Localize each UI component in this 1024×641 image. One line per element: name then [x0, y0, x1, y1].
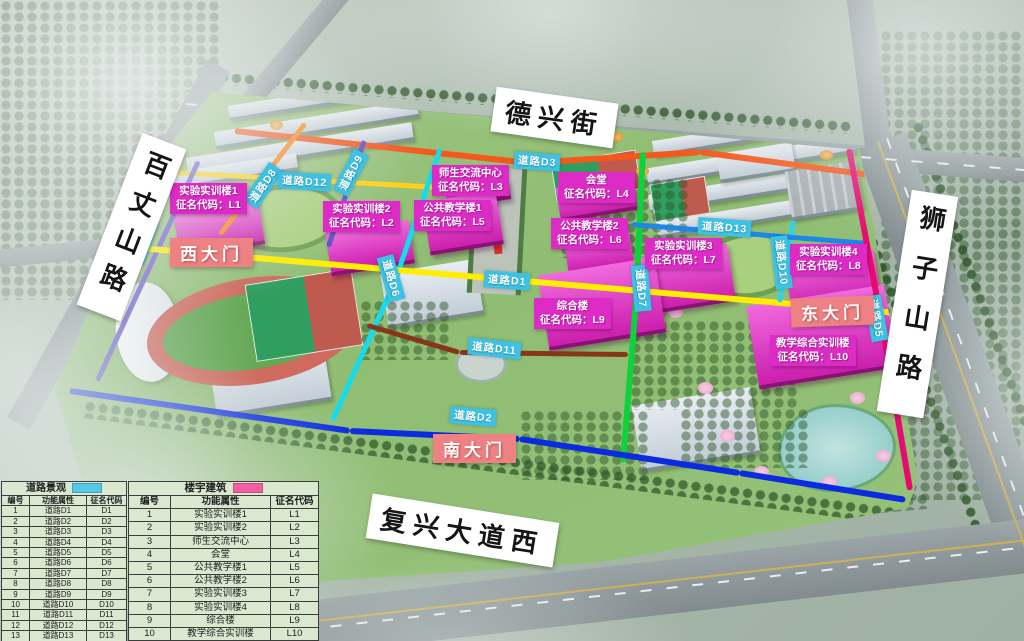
- legend-cell: L1: [271, 509, 319, 522]
- building-label-l3: 师生交流中心征名代码：L3: [432, 165, 509, 196]
- road-label-d1: 道路D1: [483, 270, 531, 290]
- campus-aerial-map: 道路D1 道路D2 道路D3 道路D4 道路D5 道路D6 道路D7 道路D8 …: [0, 0, 1024, 641]
- legend-row: 1道路D1D1: [2, 506, 127, 516]
- legend-cell: 实验实训楼3: [171, 588, 271, 601]
- road-label-d12: 道路D12: [278, 172, 332, 192]
- building-code: 征名代码：L1: [176, 199, 241, 213]
- legend-row: 5公共教学楼1L5: [129, 562, 319, 575]
- building-legend-table: 楼宇建筑 编号功能属性征名代码 1实验实训楼1L12实验实训楼2L23师生交流中…: [128, 481, 319, 641]
- legend-row: 6道路D6D6: [2, 558, 127, 568]
- sakura-tree: [850, 392, 865, 404]
- building-name: 公共教学楼1: [420, 202, 485, 216]
- legend-cell: 5: [129, 562, 171, 575]
- legend-header-row: 编号功能属性征名代码: [129, 496, 319, 509]
- legend-cell: D3: [87, 527, 127, 537]
- legend-row: 9道路D9D9: [2, 589, 127, 599]
- legend-cell: 道路D9: [30, 589, 87, 599]
- building-label-l6: 公共教学楼2征名代码：L6: [551, 218, 628, 249]
- legend-cell: 9: [129, 614, 171, 627]
- legend-cell: 道路D5: [30, 548, 87, 558]
- legend-row: 8道路D8D8: [2, 579, 127, 589]
- legend-cell: 3: [2, 527, 30, 537]
- building-label-l7: 实验实训楼3征名代码：L7: [645, 238, 722, 269]
- building-label-l5: 公共教学楼1征名代码：L5: [414, 200, 491, 231]
- legend-cell: 4: [2, 537, 30, 547]
- legend-row: 12道路D12D12: [2, 620, 127, 630]
- legend-cell: 10: [2, 600, 30, 610]
- legend-cell: 公共教学楼2: [171, 575, 271, 588]
- building-label-l4: 会堂征名代码：L4: [558, 172, 635, 203]
- legend-cell: D13: [87, 631, 127, 641]
- legend-cell: D12: [87, 620, 127, 630]
- legend-cell: 道路D1: [30, 506, 87, 516]
- legend-cell: D7: [87, 568, 127, 578]
- legend-cell: 实验实训楼1: [171, 509, 271, 522]
- legend-row: 10道路D10D10: [2, 600, 127, 610]
- legend-cell: 道路D10: [30, 600, 87, 610]
- legend-row: 5道路D5D5: [2, 548, 127, 558]
- legend-tables: 道路景观 编号功能属性征名代码 1道路D1D12道路D2D23道路D3D34道路…: [1, 481, 319, 641]
- legend-cell: D1: [87, 506, 127, 516]
- building-label-l2: 实验实训楼2征名代码：L2: [323, 201, 400, 232]
- road-label-d13: 道路D13: [697, 217, 751, 238]
- legend-title-text: 道路景观: [26, 483, 66, 494]
- legend-cell: 1: [129, 509, 171, 522]
- road-north-branch: [240, 0, 351, 111]
- legend-title-text: 楼宇建筑: [185, 482, 227, 494]
- building-name: 实验实训楼4: [796, 246, 861, 260]
- legend-cell: 道路D12: [30, 620, 87, 630]
- legend-cell: 2: [2, 516, 30, 526]
- legend-row: 3师生交流中心L3: [129, 535, 319, 548]
- building-code: 征名代码：L3: [438, 181, 503, 195]
- legend-cell: 道路D11: [30, 610, 87, 620]
- legend-cell: D4: [87, 537, 127, 547]
- gate-label-south: 南大门: [433, 434, 516, 463]
- legend-cell: D10: [87, 600, 127, 610]
- building-name: 实验实训楼2: [329, 203, 394, 217]
- autumn-tree: [820, 150, 833, 160]
- building-label-l8: 实验实训楼4征名代码：L8: [790, 244, 867, 275]
- legend-row: 2道路D2D2: [2, 516, 127, 526]
- legend-row: 2实验实训楼2L2: [129, 522, 319, 535]
- legend-cell: L9: [271, 614, 319, 627]
- legend-cell: 道路D2: [30, 516, 87, 526]
- legend-cell: 道路D7: [30, 568, 87, 578]
- legend-cell: 6: [2, 558, 30, 568]
- legend-cell: 8: [2, 579, 30, 589]
- legend-cell: 公共教学楼1: [171, 562, 271, 575]
- sakura-tree: [698, 382, 713, 394]
- building-name: 会堂: [564, 174, 629, 188]
- legend-cell: 道路D6: [30, 558, 87, 568]
- building-name: 实验实训楼1: [176, 185, 241, 199]
- legend-cell: L4: [271, 548, 319, 561]
- legend-cell: 11: [2, 610, 30, 620]
- building-name: 公共教学楼2: [557, 220, 622, 234]
- building-name: 教学综合实训楼: [776, 337, 850, 351]
- legend-cell: 7: [2, 568, 30, 578]
- building-code: 征名代码：L7: [651, 254, 716, 268]
- legend-cell: 1: [2, 506, 30, 516]
- legend-cell: 13: [2, 631, 30, 641]
- road-legend-title: 道路景观: [2, 482, 127, 496]
- road-label-d3: 道路D3: [513, 151, 561, 171]
- legend-row: 6公共教学楼2L6: [129, 575, 319, 588]
- legend-cell: L10: [271, 628, 319, 641]
- legend-cell: D5: [87, 548, 127, 558]
- legend-row: 4道路D4D4: [2, 537, 127, 547]
- building-code: 征名代码：L5: [420, 216, 485, 230]
- building-legend-title: 楼宇建筑: [129, 482, 319, 496]
- building-name: 综合楼: [540, 300, 605, 314]
- legend-row: 7道路D7D7: [2, 568, 127, 578]
- legend-cell: 3: [129, 535, 171, 548]
- legend-header-cell: 征名代码: [271, 496, 319, 509]
- legend-header-cell: 功能属性: [171, 496, 271, 509]
- legend-cell: 8: [129, 601, 171, 614]
- legend-cell: 会堂: [171, 548, 271, 561]
- legend-cell: 道路D13: [30, 631, 87, 641]
- legend-row: 4会堂L4: [129, 548, 319, 561]
- legend-row: 10教学综合实训楼L10: [129, 628, 319, 641]
- tennis-courts: [245, 268, 364, 362]
- road-legend-table: 道路景观 编号功能属性征名代码 1道路D1D12道路D2D23道路D3D34道路…: [1, 481, 127, 641]
- legend-cell: D11: [87, 610, 127, 620]
- building-name: 实验实训楼3: [651, 240, 716, 254]
- legend-cell: L7: [271, 588, 319, 601]
- legend-header-cell: 编号: [2, 496, 30, 506]
- legend-row: 9综合楼L9: [129, 614, 319, 627]
- legend-row: 11道路D11D11: [2, 610, 127, 620]
- tree-patch: [680, 408, 810, 468]
- legend-cell: D9: [87, 589, 127, 599]
- legend-cell: 12: [2, 620, 30, 630]
- legend-header-cell: 功能属性: [30, 496, 87, 506]
- legend-cell: L5: [271, 562, 319, 575]
- legend-cell: D2: [87, 516, 127, 526]
- legend-cell: 实验实训楼2: [171, 522, 271, 535]
- legend-cell: L3: [271, 535, 319, 548]
- building-label-l1: 实验实训楼1征名代码：L1: [170, 183, 247, 214]
- legend-cell: 10: [129, 628, 171, 641]
- legend-cell: L6: [271, 575, 319, 588]
- building-code: 征名代码：L4: [564, 188, 629, 202]
- road-legend-body: 1道路D1D12道路D2D23道路D3D34道路D4D45道路D5D56道路D6…: [2, 506, 127, 641]
- legend-cell: L2: [271, 522, 319, 535]
- sakura-tree: [876, 450, 891, 462]
- gate-label-west: 西大门: [170, 238, 253, 267]
- legend-row: 8实验实训楼4L8: [129, 601, 319, 614]
- legend-cell: 道路D4: [30, 537, 87, 547]
- legend-cell: 4: [129, 548, 171, 561]
- legend-cell: 实验实训楼4: [171, 601, 271, 614]
- building-label-l10: 教学综合实训楼征名代码：L10: [770, 335, 856, 366]
- building-code: 征名代码：L6: [557, 234, 622, 248]
- road-color-swatch: [72, 483, 102, 493]
- legend-cell: 5: [2, 548, 30, 558]
- legend-header-cell: 编号: [129, 496, 171, 509]
- building-code: 征名代码：L2: [329, 217, 394, 231]
- gate-label-east: 东大门: [791, 296, 875, 328]
- autumn-tree: [270, 120, 283, 130]
- legend-row: 13道路D13D13: [2, 631, 127, 641]
- legend-cell: 6: [129, 575, 171, 588]
- legend-cell: D8: [87, 579, 127, 589]
- legend-header-row: 编号功能属性征名代码: [2, 496, 127, 506]
- building-code: 征名代码：L10: [776, 351, 850, 365]
- legend-cell: 9: [2, 589, 30, 599]
- legend-row: 3道路D3D3: [2, 527, 127, 537]
- legend-cell: 2: [129, 522, 171, 535]
- building-color-swatch: [233, 483, 263, 493]
- sakura-tree: [720, 430, 735, 442]
- legend-cell: 师生交流中心: [171, 535, 271, 548]
- legend-row: 7实验实训楼3L7: [129, 588, 319, 601]
- legend-cell: 教学综合实训楼: [171, 628, 271, 641]
- building-name: 师生交流中心: [438, 167, 503, 181]
- legend-row: 1实验实训楼1L1: [129, 509, 319, 522]
- legend-cell: 道路D8: [30, 579, 87, 589]
- legend-cell: 7: [129, 588, 171, 601]
- legend-cell: D6: [87, 558, 127, 568]
- legend-header-cell: 征名代码: [87, 496, 127, 506]
- legend-cell: L8: [271, 601, 319, 614]
- legend-cell: 道路D3: [30, 527, 87, 537]
- building-legend-body: 1实验实训楼1L12实验实训楼2L23师生交流中心L34会堂L45公共教学楼1L…: [129, 509, 319, 641]
- legend-cell: 综合楼: [171, 614, 271, 627]
- building-code: 征名代码：L9: [540, 314, 605, 328]
- building-label-l9: 综合楼征名代码：L9: [534, 298, 611, 329]
- building-code: 征名代码：L8: [796, 260, 861, 274]
